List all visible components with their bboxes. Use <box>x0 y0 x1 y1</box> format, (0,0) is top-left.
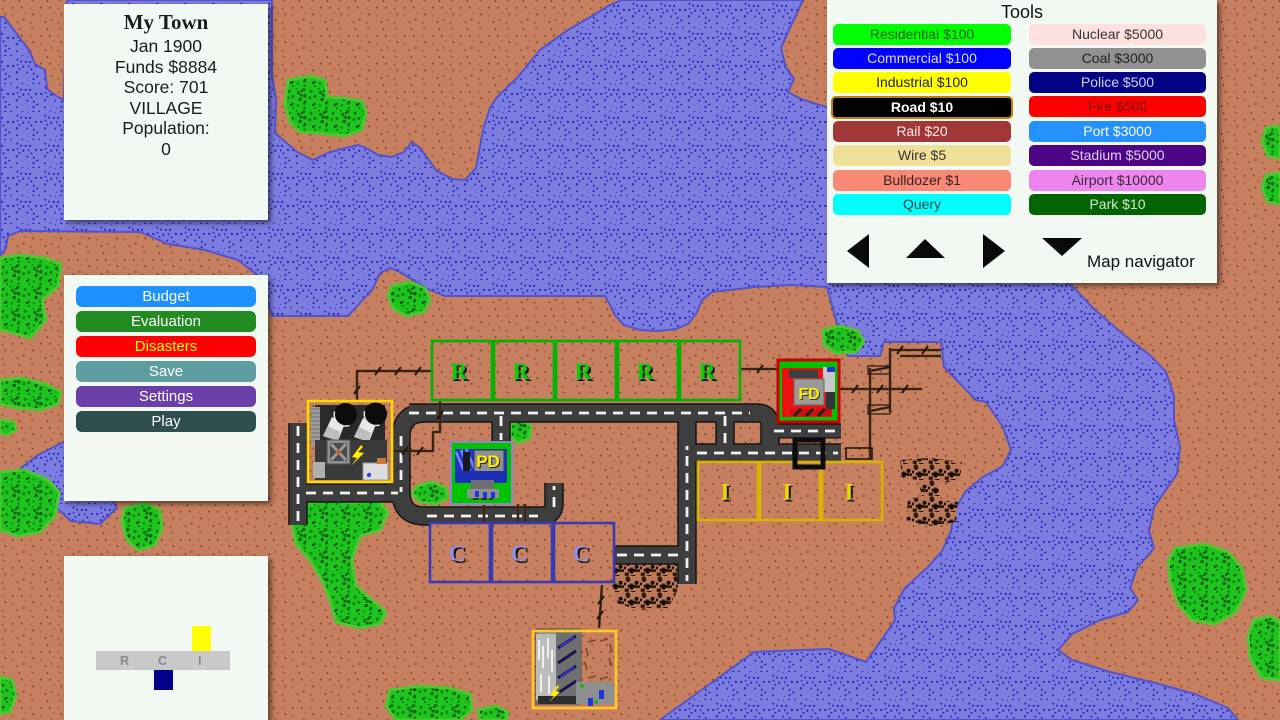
svg-text:I: I <box>721 480 730 505</box>
svg-text:R: R <box>513 359 530 384</box>
svg-text:R: R <box>451 359 468 384</box>
svg-text:C: C <box>511 541 528 566</box>
svg-text:C: C <box>573 541 590 566</box>
svg-text:PD: PD <box>476 452 500 471</box>
svg-text:R: R <box>637 359 654 384</box>
svg-text:R: R <box>575 359 592 384</box>
svg-text:I: I <box>783 480 792 505</box>
svg-text:C: C <box>449 541 466 566</box>
svg-text:FD: FD <box>798 386 819 403</box>
svg-text:R: R <box>699 359 716 384</box>
svg-text:I: I <box>845 480 854 505</box>
